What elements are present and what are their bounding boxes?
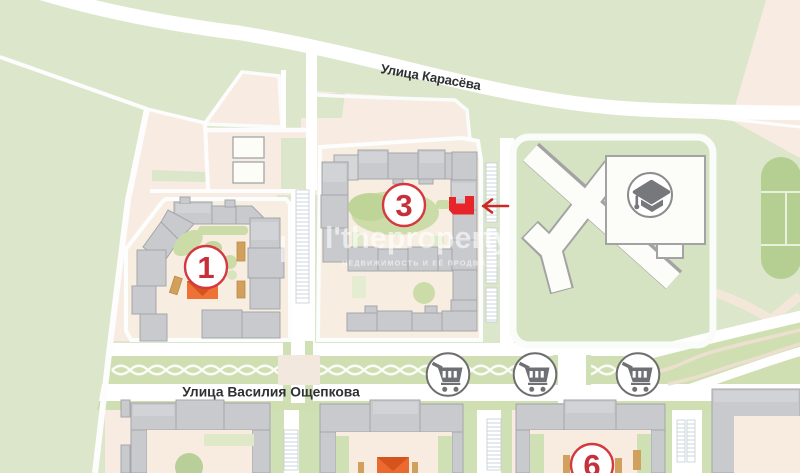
svg-text:theproperty: theproperty	[341, 221, 511, 255]
svg-text:1: 1	[197, 250, 214, 285]
svg-text:Улица Василия Ощепкова: Улица Василия Ощепкова	[182, 385, 360, 400]
svg-text:l': l'	[325, 221, 341, 255]
svg-text:3: 3	[395, 188, 412, 223]
svg-text:6: 6	[583, 448, 600, 473]
svg-text:НЕДВИЖИМОСТЬ И ЕЁ ПРОДВИЖЕНИЕ: НЕДВИЖИМОСТЬ И ЕЁ ПРОДВИЖЕНИЕ	[342, 259, 518, 268]
